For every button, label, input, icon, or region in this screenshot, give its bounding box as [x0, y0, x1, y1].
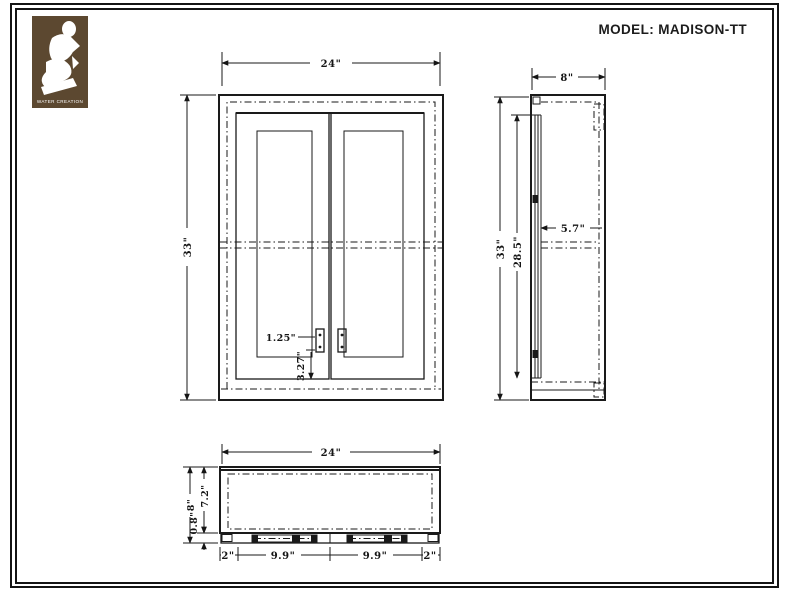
side-hinge-top — [533, 195, 538, 203]
handle-offset-dim: 3.27" — [296, 351, 307, 381]
side-hinge-bottom — [533, 350, 538, 358]
plan-right-endcap — [428, 535, 438, 542]
right-handle — [338, 329, 346, 352]
plan-body-depth-dim: 7.2" — [200, 484, 211, 507]
plan-dimensions: 24" 8" 7.2" 0.8" — [183, 444, 440, 562]
handle-width-dim: 1.25" — [266, 333, 296, 344]
front-right-door — [331, 113, 424, 379]
plan-hidden-box — [228, 474, 432, 529]
plan-width-dim: 24" — [321, 448, 342, 459]
plan-right-hinge-hardware — [347, 535, 407, 542]
front-left-door-panel — [257, 131, 312, 357]
side-door-profile — [531, 115, 541, 378]
plan-carcass-outline — [220, 467, 440, 533]
left-handle — [316, 329, 324, 352]
side-view: 8" 33" 28.5" 5.7" — [494, 68, 605, 400]
side-height-dim: 33" — [496, 239, 507, 260]
plan-depth-dim: 8" — [186, 499, 197, 511]
side-depth-dim: 8" — [560, 73, 573, 84]
side-top-cleat — [533, 97, 540, 104]
side-door-height-dim: 28.5" — [513, 236, 524, 268]
plan-left-hinge-hardware — [252, 535, 317, 542]
plan-left-margin-dim: 2" — [221, 551, 234, 562]
front-width-dim: 24" — [321, 59, 342, 70]
plan-left-span-dim: 9.9" — [271, 551, 296, 562]
cabinet-drawing: 24" 33" 1.25" 3.27" — [0, 0, 787, 591]
front-view: 24" 33" 1.25" 3.27" — [180, 52, 443, 400]
side-dimensions: 8" 33" 28.5" 5.7" — [494, 68, 605, 400]
plan-right-margin-dim: 2" — [423, 551, 436, 562]
drawing-sheet: WATER CREATION MODEL: MADISON-TT — [0, 0, 787, 591]
front-right-door-panel — [344, 131, 403, 357]
plan-right-span-dim: 9.9" — [363, 551, 388, 562]
front-height-dim: 33" — [183, 237, 194, 258]
side-inner-depth-dim: 5.7" — [561, 224, 586, 235]
plan-view: 24" 8" 7.2" 0.8" — [183, 444, 440, 562]
plan-left-endcap — [222, 535, 232, 542]
plan-door-thickness-dim: 0.8" — [189, 511, 200, 534]
